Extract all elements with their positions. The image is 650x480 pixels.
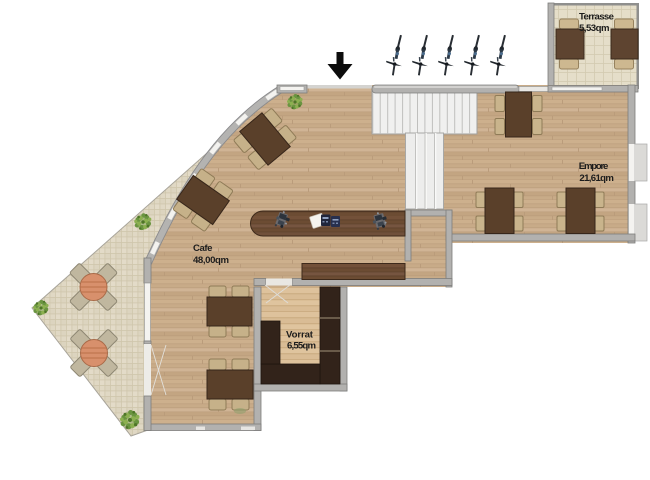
svg-text:5,53qm: 5,53qm (579, 23, 610, 34)
svg-text:Terrasse: Terrasse (579, 12, 614, 23)
svg-text:21,61qm: 21,61qm (579, 173, 614, 184)
svg-text:Cafe: Cafe (193, 243, 213, 254)
svg-text:Empore: Empore (579, 161, 609, 172)
svg-text:Vorrat: Vorrat (286, 330, 314, 341)
svg-text:48,00qm: 48,00qm (193, 255, 229, 266)
svg-text:6,55qm: 6,55qm (287, 341, 316, 352)
